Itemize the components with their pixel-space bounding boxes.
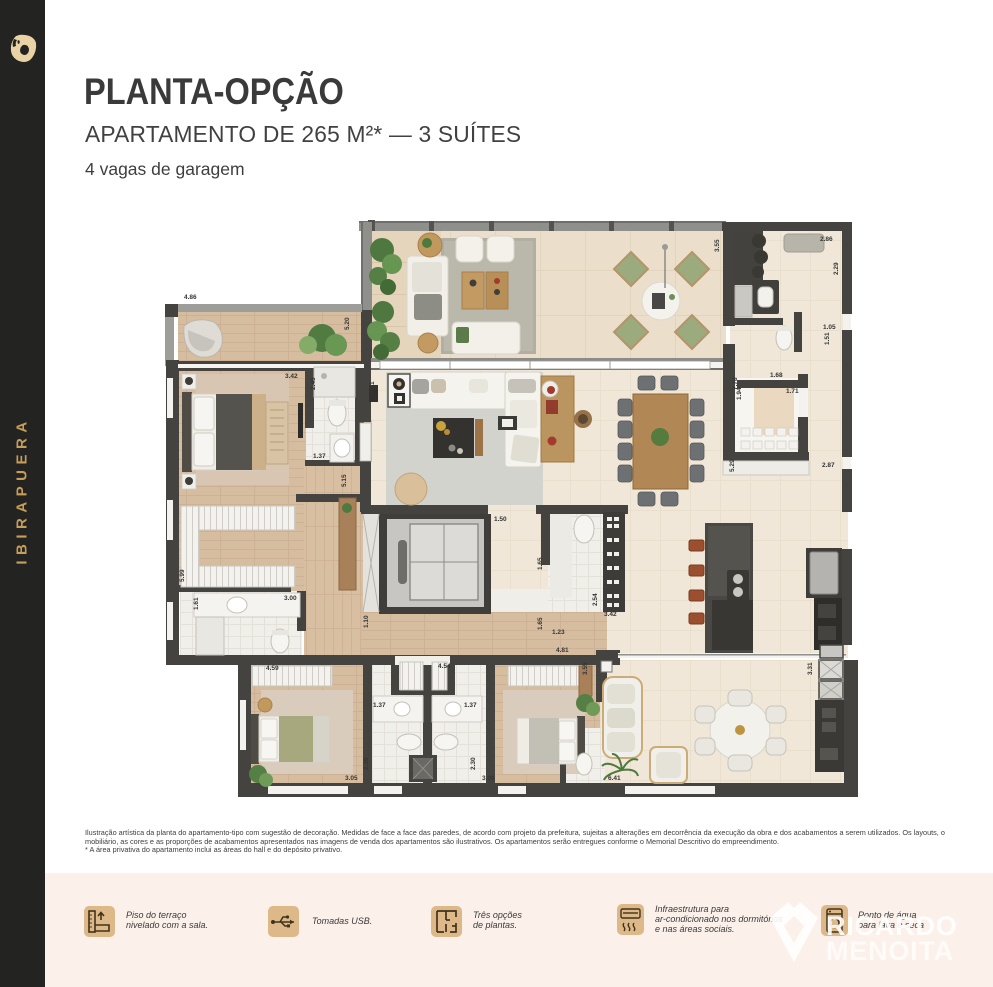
svg-text:MENOITA: MENOITA bbox=[826, 936, 954, 966]
